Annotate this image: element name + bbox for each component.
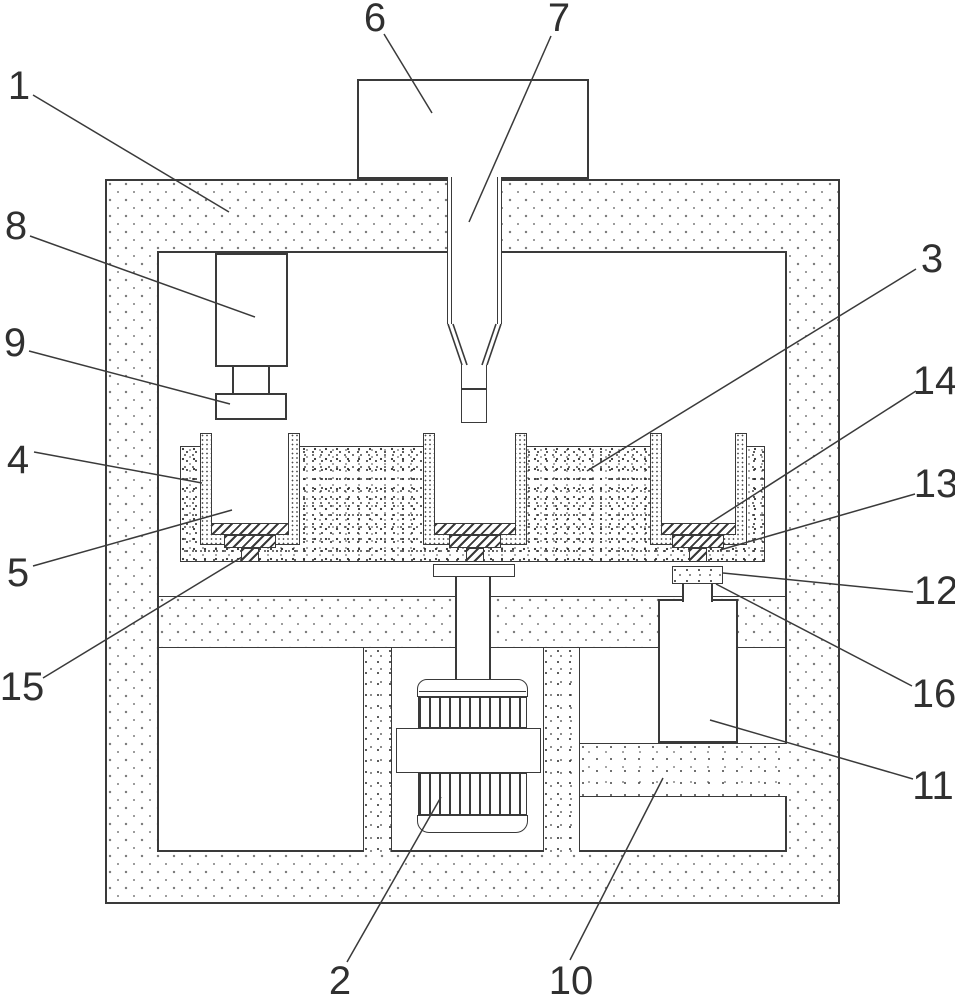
ref-label-6: 6 <box>364 0 386 38</box>
coupling-block <box>672 566 723 584</box>
crucible-left-cavity <box>211 433 289 523</box>
ref-label-14: 14 <box>913 361 955 401</box>
feed-tube-wall-left <box>447 177 452 324</box>
ref-label-15: 15 <box>0 667 44 707</box>
ref-label-5: 5 <box>7 553 29 593</box>
ref-label-8: 8 <box>5 206 27 246</box>
coupling-neck <box>682 583 713 602</box>
ref-label-13: 13 <box>914 464 955 504</box>
press-cylinder <box>215 253 288 367</box>
motor-fins-lower <box>418 773 527 815</box>
feed-nozzle-upper <box>461 364 487 389</box>
partition-strip-left <box>363 648 392 852</box>
motor-cap-bottom <box>417 815 528 833</box>
ref-label-1: 1 <box>8 66 30 106</box>
patent-figure-canvas: 18945156731413121611210 <box>0 0 955 1000</box>
ref-label-2: 2 <box>329 961 351 1000</box>
motor-band <box>396 728 541 773</box>
ref-label-10: 10 <box>549 961 594 1000</box>
ref-label-16: 16 <box>912 674 955 714</box>
ref-label-3: 3 <box>921 239 943 279</box>
ref-label-7: 7 <box>548 0 570 38</box>
crucible-center-block <box>449 535 501 548</box>
support-flange <box>433 564 515 577</box>
feed-tube-wall-right <box>497 177 502 324</box>
feed-tube-interior <box>452 177 497 324</box>
press-neck <box>232 367 270 393</box>
feed-nozzle-lower <box>461 389 487 423</box>
ref-label-12: 12 <box>914 571 955 611</box>
ref-label-4: 4 <box>7 440 29 480</box>
press-plate <box>215 393 287 420</box>
crucible-left-block <box>224 535 276 548</box>
crucible-center-pin <box>466 548 484 562</box>
ref-label-9: 9 <box>4 323 26 363</box>
partition-strip-right <box>543 648 580 852</box>
motor-fins-upper <box>418 697 527 728</box>
crucible-right-block <box>672 535 724 548</box>
drive-shaft <box>455 577 491 680</box>
motor-cap-top <box>417 679 528 697</box>
crucible-center-slab <box>434 523 516 535</box>
crucible-left-slab <box>211 523 289 535</box>
crucible-right-cavity <box>661 433 736 523</box>
crucible-center-cavity <box>434 433 516 523</box>
fill-band <box>580 743 787 797</box>
crucible-right-pin <box>689 548 707 562</box>
crucible-left-pin <box>241 548 259 562</box>
motor-cap-line <box>419 691 526 692</box>
lower-box <box>658 599 738 743</box>
ref-label-11: 11 <box>912 766 954 806</box>
feed-box <box>357 79 589 179</box>
crucible-right-slab <box>661 523 736 535</box>
